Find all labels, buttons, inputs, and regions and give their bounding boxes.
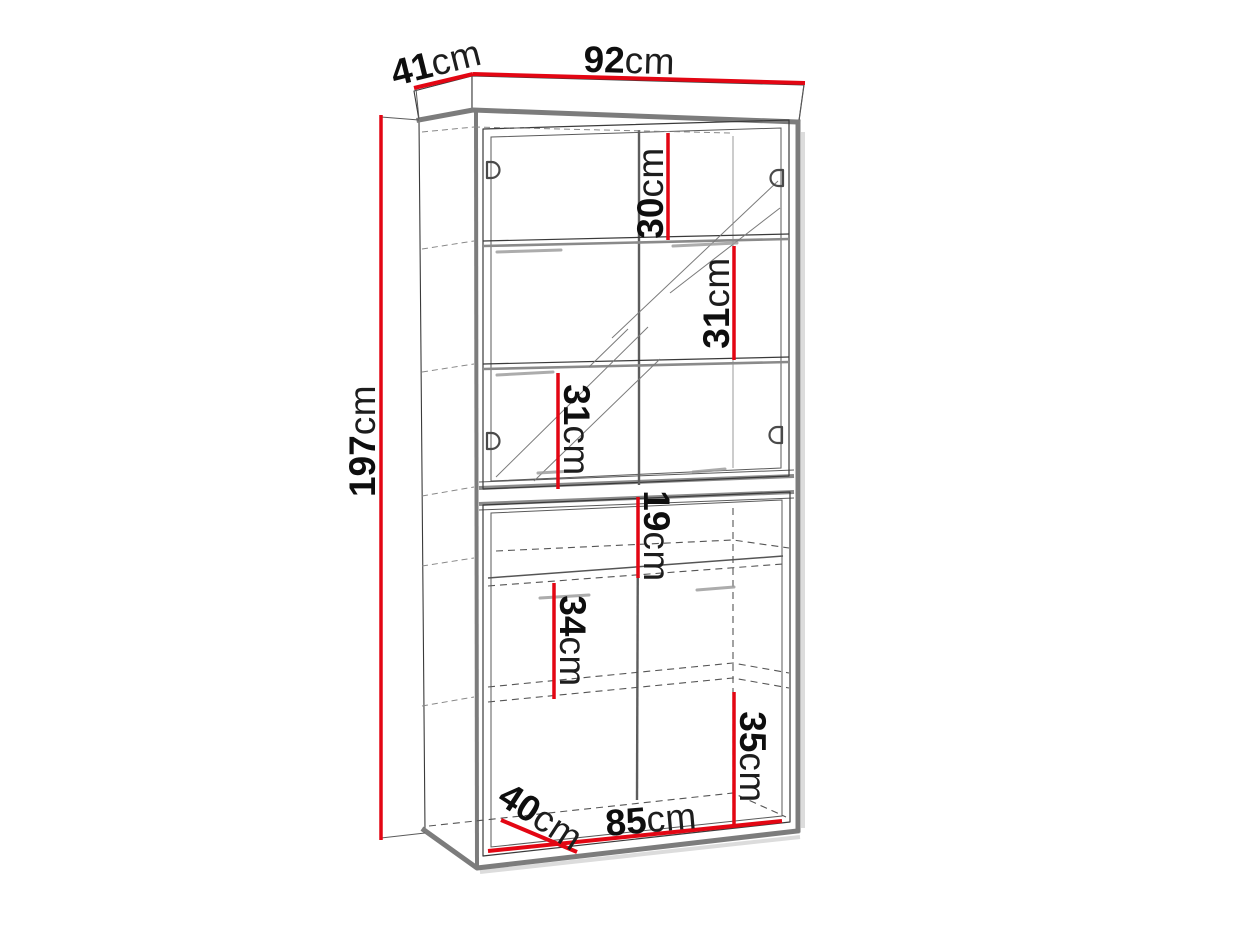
left-side-panel (419, 110, 477, 868)
dim-label-total-height: 197cm (342, 385, 383, 497)
dim-label-top-width: 92cm (583, 39, 676, 83)
dim-label-lower-gap-bottom: 35cm (732, 711, 773, 802)
cabinet-dimension-diagram: 41cm 92cm 197cm 30cm 31cm 31cm 19cm 34cm… (0, 0, 1244, 933)
dim-label-lower-niche: 19cm (636, 490, 677, 581)
dim-label-upper-gap-bottom: 31cm (556, 384, 597, 475)
dim-label-upper-gap-top: 30cm (630, 147, 671, 238)
dim-label-upper-gap-middle: 31cm (696, 257, 737, 348)
dim-label-lower-gap-middle: 34cm (552, 595, 593, 686)
dim-label-inner-width: 85cm (604, 795, 699, 844)
front-left-edge (476, 111, 477, 867)
diagram-page: 41cm 92cm 197cm 30cm 31cm 31cm 19cm 34cm… (0, 0, 1244, 933)
